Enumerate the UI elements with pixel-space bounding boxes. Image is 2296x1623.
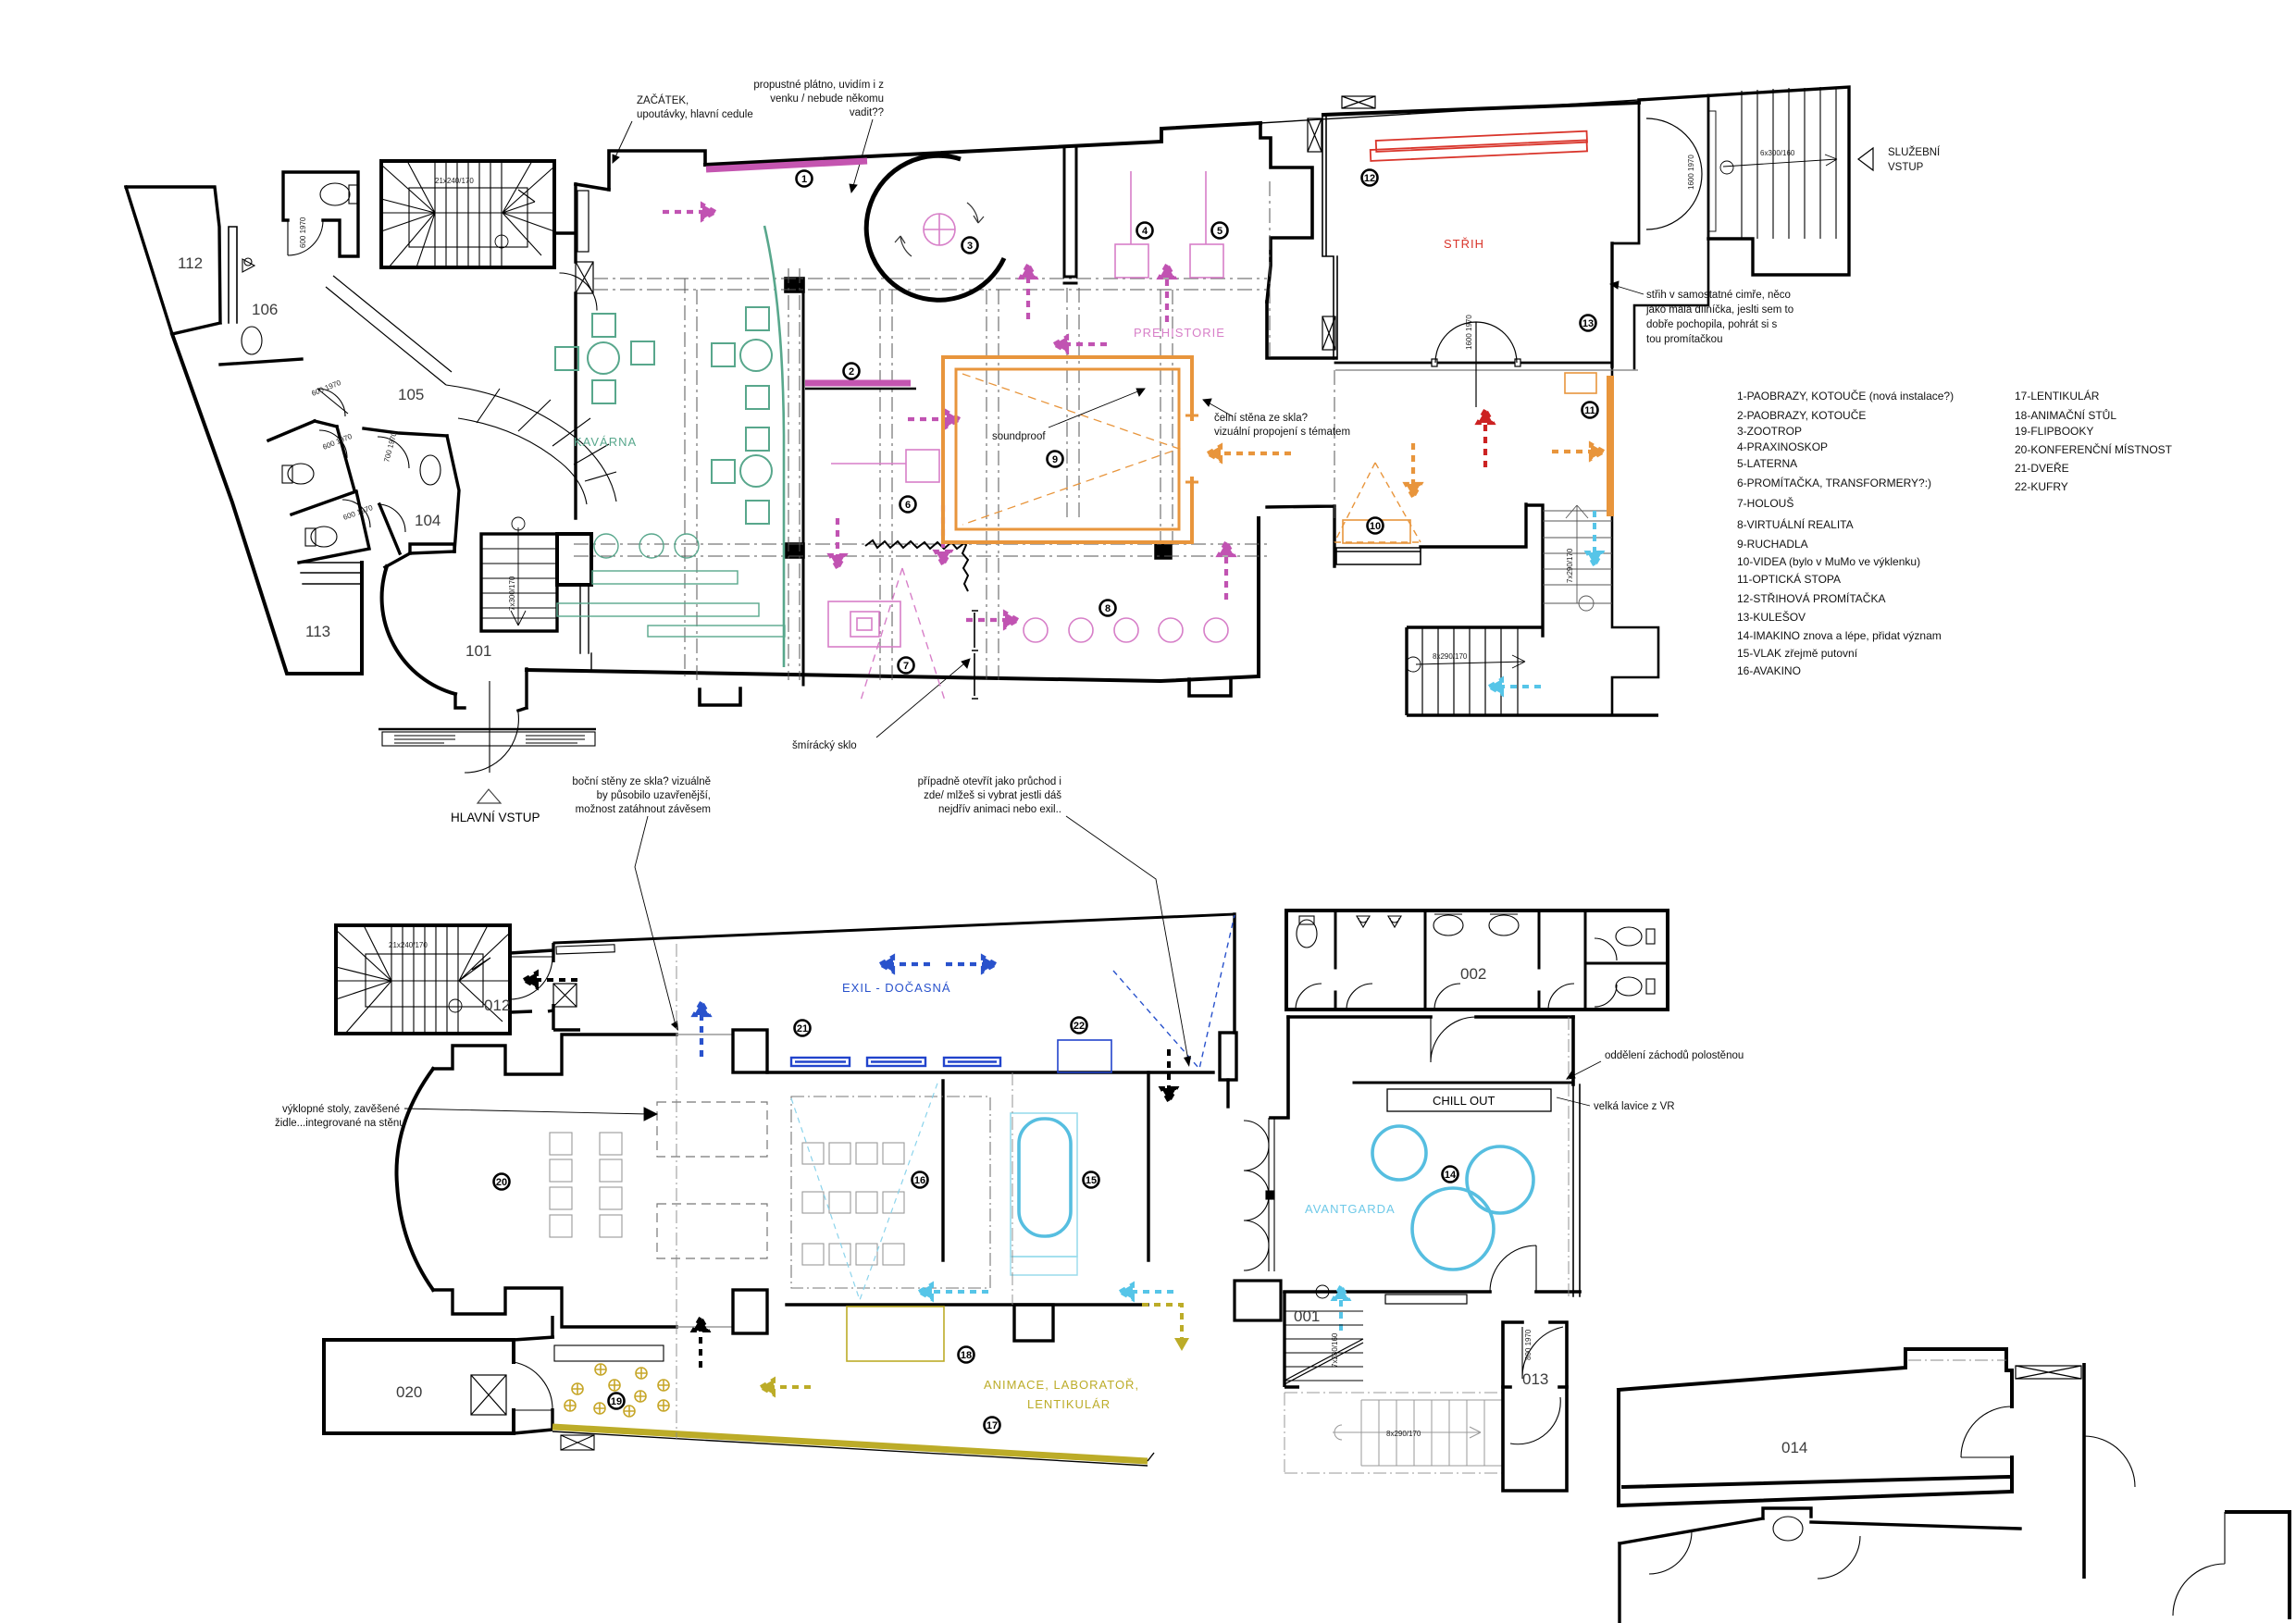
svg-text:15: 15	[1086, 1175, 1097, 1186]
svg-text:21: 21	[797, 1023, 808, 1035]
svg-text:2: 2	[849, 366, 854, 378]
svg-text:17: 17	[987, 1420, 998, 1431]
svg-text:5: 5	[1217, 226, 1222, 237]
svg-text:14-IMAKINO znova a lépe, přida: 14-IMAKINO znova a lépe, přidat význam	[1737, 629, 1942, 642]
svg-text:tou promítačkou: tou promítačkou	[1646, 334, 1722, 345]
svg-text:střih v samostatné cimře, něco: střih v samostatné cimře, něco	[1646, 290, 1791, 301]
svg-text:101: 101	[465, 642, 491, 660]
svg-text:13-KULEŠOV: 13-KULEŠOV	[1737, 610, 1806, 624]
svg-text:velká lavice z VR: velká lavice z VR	[1594, 1101, 1675, 1112]
svg-text:6x300/160: 6x300/160	[1760, 149, 1795, 157]
svg-text:2-PAOBRAZY, KOTOUČE: 2-PAOBRAZY, KOTOUČE	[1737, 408, 1866, 422]
svg-text:7: 7	[903, 661, 909, 672]
svg-text:7-HOLOUŠ: 7-HOLOUŠ	[1737, 496, 1793, 510]
svg-text:zde/ mlžeš si vybrat jestli dá: zde/ mlžeš si vybrat jestli dáš	[924, 790, 1061, 801]
svg-text:8x290/170: 8x290/170	[1433, 652, 1468, 661]
svg-text:013: 013	[1522, 1370, 1548, 1388]
svg-text:šmírácký sklo: šmírácký sklo	[792, 740, 857, 751]
svg-text:9-RUCHADLA: 9-RUCHADLA	[1737, 538, 1808, 551]
svg-text:židle...integrované na stěnu: židle...integrované na stěnu	[275, 1118, 405, 1129]
svg-text:čelní stěna ze skla?: čelní stěna ze skla?	[1214, 413, 1308, 424]
svg-text:KAVÁRNA: KAVÁRNA	[574, 435, 637, 449]
svg-text:případně otevřít jako průchod: případně otevřít jako průchod i	[918, 776, 1061, 787]
svg-text:upoutávky, hlavní cedule: upoutávky, hlavní cedule	[637, 109, 753, 120]
svg-text:ZAČÁTEK,: ZAČÁTEK,	[637, 94, 689, 106]
svg-text:20: 20	[496, 1177, 507, 1188]
svg-text:19-FLIPBOOKY: 19-FLIPBOOKY	[2015, 425, 2093, 438]
svg-text:112: 112	[178, 254, 203, 272]
svg-text:venku / nebude někomu: venku / nebude někomu	[770, 93, 884, 105]
svg-text:21-DVEŘE: 21-DVEŘE	[2015, 461, 2069, 475]
svg-text:13: 13	[1582, 318, 1594, 329]
svg-text:8x290/170: 8x290/170	[1386, 1430, 1421, 1438]
svg-text:PREHISTORIE: PREHISTORIE	[1134, 326, 1225, 340]
svg-text:104: 104	[415, 512, 441, 529]
svg-text:boční stěny ze skla? vizuálně: boční stěny ze skla? vizuálně	[572, 776, 711, 787]
svg-text:6-PROMÍTAČKA, TRANSFORMERY?:): 6-PROMÍTAČKA, TRANSFORMERY?:)	[1737, 476, 1931, 489]
svg-text:012: 012	[484, 997, 510, 1014]
svg-text:nejdřív animaci nebo exil..: nejdřív animaci nebo exil..	[938, 804, 1061, 815]
svg-text:CHILL OUT: CHILL OUT	[1433, 1094, 1495, 1108]
svg-text:6: 6	[905, 500, 911, 511]
svg-text:18-ANIMAČNÍ STŮL: 18-ANIMAČNÍ STŮL	[2015, 408, 2116, 422]
svg-text:002: 002	[1460, 965, 1486, 983]
svg-text:001: 001	[1294, 1307, 1320, 1325]
svg-text:by působilo uzavřenější,: by působilo uzavřenější,	[597, 790, 711, 801]
svg-text:10-VIDEA (bylo v MuMo ve výkl: 10-VIDEA (bylo v MuMo ve výklenku)	[1737, 555, 1920, 568]
svg-text:1600 1970: 1600 1970	[1465, 315, 1473, 350]
svg-text:22: 22	[1074, 1021, 1085, 1032]
svg-text:12: 12	[1364, 173, 1375, 184]
svg-text:16-AVAKINO: 16-AVAKINO	[1737, 664, 1801, 677]
svg-text:21x240/170: 21x240/170	[389, 941, 428, 949]
svg-text:1: 1	[801, 174, 807, 185]
svg-text:SLUŽEBNÍ: SLUŽEBNÍ	[1888, 146, 1941, 158]
svg-text:22-KUFRY: 22-KUFRY	[2015, 480, 2068, 493]
svg-text:soundproof: soundproof	[992, 431, 1046, 442]
svg-text:4-PRAXINOSKOP: 4-PRAXINOSKOP	[1737, 440, 1828, 453]
svg-text:3-ZOOTROP: 3-ZOOTROP	[1737, 425, 1802, 438]
svg-text:18: 18	[961, 1350, 972, 1361]
svg-text:dobře pochopila, pohrát si s: dobře pochopila, pohrát si s	[1646, 319, 1778, 330]
svg-text:7x280/160: 7x280/160	[1331, 1332, 1339, 1368]
svg-text:8-VIRTUÁLNÍ REALITA: 8-VIRTUÁLNÍ REALITA	[1737, 517, 1854, 531]
svg-text:jako malá dílníčka, jeslti sem: jako malá dílníčka, jeslti sem to	[1645, 304, 1793, 316]
svg-text:11-OPTICKÁ STOPA: 11-OPTICKÁ STOPA	[1737, 572, 1841, 586]
svg-text:800 1970: 800 1970	[1524, 1329, 1533, 1360]
svg-text:020: 020	[396, 1383, 422, 1401]
svg-text:11: 11	[1584, 405, 1595, 416]
svg-text:5-LATERNA: 5-LATERNA	[1737, 457, 1797, 470]
svg-text:14: 14	[1445, 1170, 1457, 1181]
svg-text:105: 105	[398, 386, 424, 403]
svg-text:7x300/170: 7x300/170	[508, 576, 516, 611]
svg-text:HLAVNÍ VSTUP: HLAVNÍ VSTUP	[451, 811, 540, 824]
svg-text:1600 1970: 1600 1970	[1687, 155, 1695, 190]
svg-text:16: 16	[914, 1175, 925, 1186]
svg-text:9: 9	[1052, 454, 1058, 465]
svg-text:10: 10	[1370, 521, 1381, 532]
svg-text:vizuální propojení s tématem: vizuální propojení s tématem	[1214, 427, 1350, 438]
svg-text:19: 19	[611, 1396, 622, 1407]
svg-text:20-KONFERENČNÍ MÍSTNOST: 20-KONFERENČNÍ MÍSTNOST	[2015, 442, 2173, 456]
svg-text:propustné plátno, uvidím i z: propustné plátno, uvidím i z	[753, 80, 884, 91]
svg-text:ANIMACE, LABORATOŘ,: ANIMACE, LABORATOŘ,	[984, 1378, 1139, 1392]
svg-text:014: 014	[1781, 1439, 1807, 1456]
svg-text:17-LENTIKULÁR: 17-LENTIKULÁR	[2015, 389, 2100, 403]
svg-text:VSTUP: VSTUP	[1888, 162, 1924, 173]
svg-text:oddělení záchodů polostěnou: oddělení záchodů polostěnou	[1605, 1050, 1744, 1061]
svg-text:12-STŘIHOVÁ PROMÍTAČKA: 12-STŘIHOVÁ PROMÍTAČKA	[1737, 591, 1885, 605]
svg-text:EXIL - DOČASNÁ: EXIL - DOČASNÁ	[842, 981, 951, 995]
svg-text:8: 8	[1105, 603, 1111, 614]
svg-text:vadit??: vadit??	[850, 107, 884, 118]
svg-text:3: 3	[967, 241, 973, 252]
svg-text:1-PAOBRAZY, KOTOUČE (nová inst: 1-PAOBRAZY, KOTOUČE (nová instalace?)	[1737, 389, 1954, 403]
svg-text:106: 106	[252, 301, 278, 318]
svg-text:LENTIKULÁR: LENTIKULÁR	[1027, 1397, 1111, 1411]
svg-text:7x290/170: 7x290/170	[1566, 548, 1574, 583]
svg-text:15-VLAK zřejmě putovní: 15-VLAK zřejmě putovní	[1737, 647, 1858, 660]
svg-text:AVANTGARDA: AVANTGARDA	[1305, 1202, 1396, 1216]
svg-text:4: 4	[1142, 226, 1148, 237]
svg-text:21x240/170: 21x240/170	[435, 177, 474, 185]
svg-text:113: 113	[305, 623, 330, 640]
svg-text:600 1970: 600 1970	[299, 217, 307, 248]
svg-text:možnost zatáhnout závěsem: možnost zatáhnout závěsem	[576, 804, 711, 815]
svg-text:STŘIH: STŘIH	[1444, 237, 1484, 251]
svg-text:výklopné stoly, zavěšené: výklopné stoly, zavěšené	[282, 1104, 400, 1115]
